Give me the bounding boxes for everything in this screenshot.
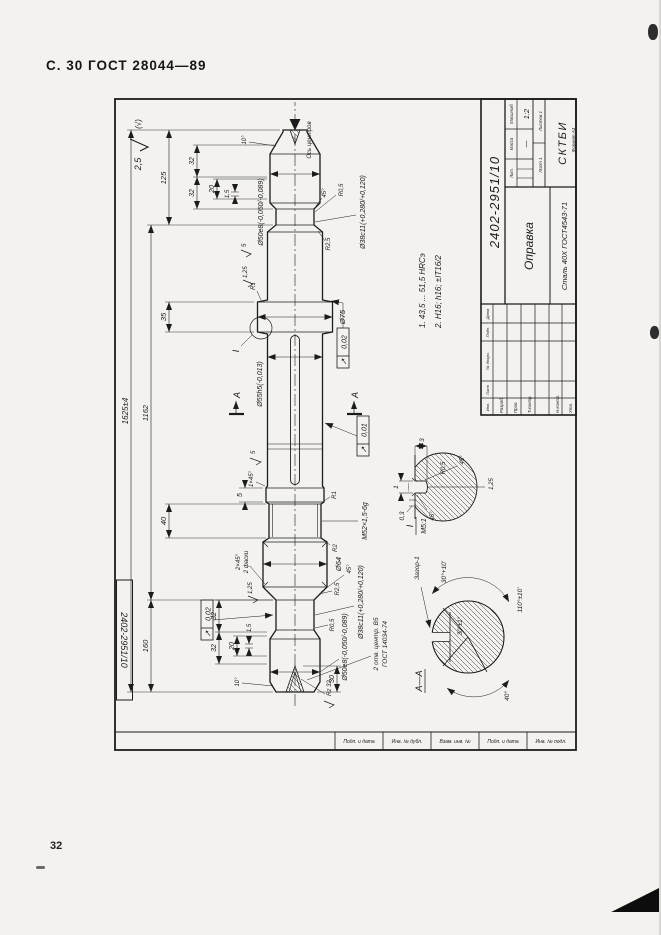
section-flat-angle: 30°±1° <box>458 616 464 635</box>
drawing-sheet: Подп. и дата Инв. № дубл. Взам. инв. № П… <box>113 97 578 752</box>
dim-35: 35 <box>159 312 168 321</box>
stamp-format: Формат А3 <box>571 127 576 152</box>
note-1: 1. 43,5 ... 51,5 HRCэ <box>418 253 427 328</box>
dim-d75: Ø75 <box>338 309 347 325</box>
stamp-col-dokum: № докум. <box>485 352 490 370</box>
detail-roughness: 1,25 <box>489 478 495 490</box>
tolerance-value: 0,02 <box>206 607 213 621</box>
stamp-row-nkontr: Н.контр. <box>555 394 560 413</box>
tolerance-frames: ↗ 0,02 ↗ 0,01 ↗ 0,02 <box>201 301 369 640</box>
dim-1-5: 1,5 <box>247 623 253 632</box>
scan-artifact <box>36 866 45 869</box>
runout-symbol-icon: ↗ <box>204 630 213 637</box>
general-roughness-suffix: (√) <box>134 119 143 129</box>
section-cut-marks: А А <box>229 392 362 414</box>
dim-32: 32 <box>211 644 218 652</box>
stamp-sheets: Листов 1 <box>538 110 543 132</box>
stamp-row-tkontr: Т.контр. <box>527 395 532 413</box>
dim-r2: R2 <box>333 544 339 552</box>
stamp-col-list: Лист <box>485 384 490 396</box>
stamp-part-title: Оправка <box>522 222 536 270</box>
dim-r0-5: R0,5 <box>339 183 345 196</box>
margin-stamp: Инв. № дубл. <box>392 739 423 745</box>
detail-callout-label: I <box>231 349 241 352</box>
section-title: А—А <box>414 670 424 692</box>
page-number: 32 <box>50 840 62 852</box>
dim-d38-right: Ø38с11(+0,280/+0,120) <box>360 175 367 250</box>
dimensions: 1625±4 160 1162 40 35 125 32 32 20 1,5 3… <box>121 130 389 708</box>
section-view-AA: А—А Зазор-1 30°±1° 30°+10' 110°±10' 40° <box>414 556 524 701</box>
axis-datum-triangle <box>290 119 301 131</box>
stamp-mass-label: Масса <box>509 137 514 150</box>
dim-r0-5: R0,5 <box>330 618 336 631</box>
center-holes-note-1: 2 отв. центр. В5 <box>373 617 380 671</box>
section-angle-top: 30°+10' <box>440 560 448 583</box>
detail-radius: R0,5 <box>441 461 447 474</box>
dim-d50-right: Ø50е8(-0,050/-0,089) <box>258 178 265 246</box>
section-angle-bottom: 110°±10' <box>516 587 524 613</box>
dim-r2-5: R2,5 <box>326 237 332 250</box>
detail-title: I <box>405 524 415 527</box>
stamp-row-prov: Пров. <box>513 401 518 413</box>
scan-artifact <box>648 24 658 40</box>
page-header: С. 30 ГОСТ 28044—89 <box>46 58 206 73</box>
dim-d50-left: Ø50е8(-0,050/-0,089) <box>342 613 349 681</box>
general-roughness-mark: 2,5 (√) <box>130 119 148 171</box>
section-gap-label: Зазор-1 <box>414 556 421 580</box>
dim-45deg: 45° <box>322 188 328 198</box>
margin-stamp: Подп. и дата <box>487 739 519 745</box>
margin-stamp: Взам. инв. № <box>440 739 472 745</box>
margin-stamps: Подп. и дата Инв. № дубл. Взам. инв. № П… <box>335 732 567 750</box>
detail-callout: I <box>231 317 272 352</box>
scan-artifact <box>608 886 661 912</box>
designation-repeat: 2402-2951/10 <box>119 611 129 668</box>
center-hole-right <box>290 130 300 144</box>
dim-160: 160 <box>141 639 150 652</box>
detail-dim-step: 0,3 <box>399 511 406 520</box>
dim-d64: Ø64 <box>334 557 343 572</box>
stamp-col-data: Дата <box>485 308 490 320</box>
dim-chamfer-2x45-note: 2 фаски <box>244 550 250 574</box>
scan-artifact <box>650 326 659 339</box>
stamp-row-razrab: Разраб. <box>499 397 504 413</box>
dim-1-5: 1,5 <box>225 189 231 198</box>
dim-1162: 1162 <box>141 404 150 421</box>
dim-40: 40 <box>159 516 168 525</box>
dim-overall: 1625±4 <box>121 397 130 424</box>
stamp-col-podp: Подп. <box>485 327 490 338</box>
dim-20: 20 <box>209 185 216 194</box>
dim-32: 32 <box>189 189 196 197</box>
detail-scale: М5:1 <box>421 518 428 534</box>
section-letter: А <box>232 392 242 399</box>
stamp-lit-label: Лит. <box>509 168 514 179</box>
general-roughness-value: 2,5 <box>133 157 143 172</box>
dim-d38-left: Ø38с11(+0,280/+0,120) <box>358 565 365 640</box>
stamp-scale-label: Масштаб <box>509 104 514 124</box>
stamp-col-izm: Изм. <box>485 403 490 412</box>
dim-chamfer-1x45: 1×45° <box>249 470 255 487</box>
stamp-scale-value: 1:2 <box>522 108 531 119</box>
roughness-5: 5 <box>242 243 248 247</box>
note-2: 2. Н16; h16; ±IT16/2 <box>434 255 443 329</box>
dim-125: 125 <box>159 171 168 184</box>
detail-dim-width: 1 <box>393 485 400 489</box>
stamp-designation: 2402-2951/10 <box>487 156 502 249</box>
stamp-org: СКТБИ <box>557 121 569 165</box>
detail-angle-45: 45° <box>430 511 436 521</box>
dim-chamfer-2x45: 2×45° <box>236 553 242 571</box>
dim-d55: Ø55h5(-0,013) <box>257 361 264 408</box>
dim-r2-5: R2,5 <box>335 582 341 595</box>
dim-5: 5 <box>237 493 244 497</box>
section-letter: А <box>350 392 360 399</box>
margin-stamp: Подп. и дата <box>343 739 375 745</box>
detail-dim-depth: 3 <box>419 438 426 442</box>
designation-repeat-box: 2402-2951/10 <box>117 580 133 700</box>
title-block: 2402-2951/10 Оправка Сталь 40Х ГОСТ4543-… <box>481 99 576 415</box>
technical-drawing-svg: Подп. и дата Инв. № дубл. Взам. инв. № П… <box>113 97 578 752</box>
axis-label: Ось центров <box>307 121 313 158</box>
dim-45deg: 45° <box>347 564 353 574</box>
margin-stamp: Инв. № подл. <box>535 739 566 745</box>
tolerance-value: 0,02 <box>342 335 349 349</box>
roughness-rz32: Rz 32 <box>327 680 333 696</box>
stamp-row-utv: Утв. <box>568 403 573 413</box>
scanned-gost-page: { "page": { "header": "С. 30 ГОСТ 28044—… <box>0 0 661 935</box>
roughness-1-25: 1,25 <box>243 266 249 278</box>
stamp-mass-value: — <box>523 140 530 149</box>
roughness-1-25: 1,25 <box>248 582 254 594</box>
tolerance-value: 0,01 <box>362 423 369 437</box>
notes: 1. 43,5 ... 51,5 HRCэ 2. Н16; h16; ±IT16… <box>418 253 443 329</box>
stamp-sheet: Лист 1 <box>538 157 543 174</box>
dim-32: 32 <box>189 157 196 165</box>
section-angle-left: 40° <box>503 691 511 701</box>
detail-view-I: I М5:1 <box>393 438 495 535</box>
stamp-material: Сталь 40Х ГОСТ4543-71 <box>560 202 569 290</box>
roughness-5: 5 <box>251 450 257 454</box>
detail-angle-45: 45° <box>460 455 466 465</box>
dim-20: 20 <box>229 642 236 651</box>
runout-symbol-icon: ↗ <box>340 358 349 365</box>
dim-r1: R1 <box>332 491 338 499</box>
dim-10deg: 10° <box>242 135 248 145</box>
dim-thread: М52×1,5-6g <box>362 502 369 540</box>
dim-10deg: 10° <box>235 677 241 687</box>
center-holes-note-2: ГОСТ 14034-74 <box>382 621 389 667</box>
runout-symbol-icon: ↗ <box>360 446 369 453</box>
